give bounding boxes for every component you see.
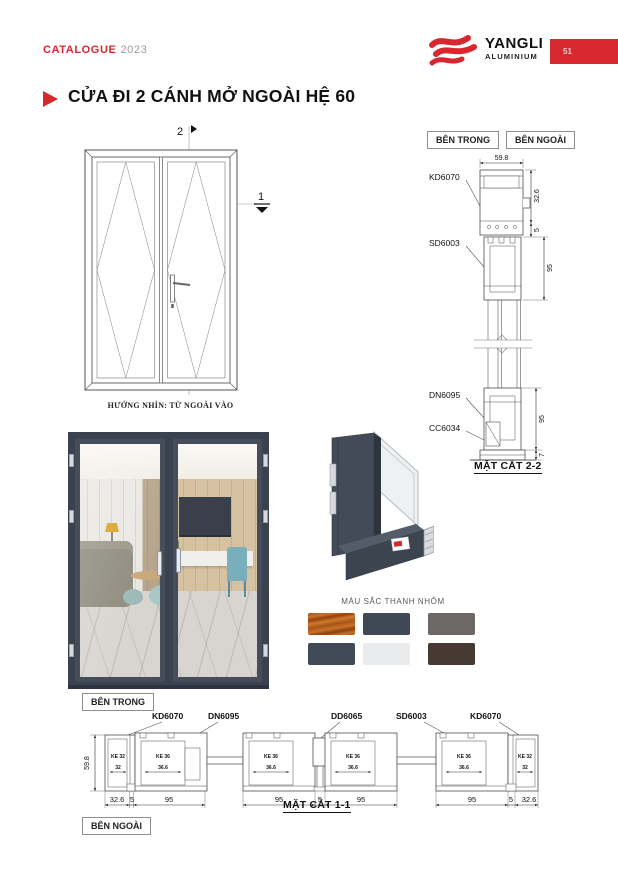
right-leaf-frame xyxy=(173,439,263,682)
profile-top-frame xyxy=(480,170,530,235)
profile-label-dn6095: DN6095 xyxy=(429,390,460,400)
s11-left-dim xyxy=(90,735,105,791)
outside-label-box-s11: BÊN NGOÀI xyxy=(82,817,151,835)
catalogue-header: CATALOGUE2023 xyxy=(43,44,147,56)
dim-59-8: 59.8 xyxy=(495,155,509,162)
ke36-dim-b1: 36.6 xyxy=(266,765,276,771)
ke36-text-c: KE 36 xyxy=(457,754,471,760)
page-number-badge: 51 xyxy=(550,39,618,64)
profile-top-leaf xyxy=(484,237,521,300)
right-door-handle xyxy=(176,548,181,573)
ke36-dim-c: 36.6 xyxy=(459,765,469,771)
s11-leaf-left xyxy=(135,733,207,791)
s11-frame-left xyxy=(105,735,137,791)
catalogue-page: CATALOGUE2023 YANGLI ALUMINIUM 51 CỬA ĐI… xyxy=(0,0,618,874)
door-frame xyxy=(85,150,237,390)
section-1-1-title: MẶT CẮT 1-1 xyxy=(283,799,351,813)
page-number: 51 xyxy=(563,47,572,56)
swatch-dark-brown xyxy=(428,643,475,665)
palette-title: MÀU SẮC THANH NHÔM xyxy=(303,597,483,606)
center-mullion xyxy=(165,439,173,682)
profile-bottom-frame xyxy=(470,450,536,460)
s11-frame-right xyxy=(506,735,538,791)
door-elevation-drawing: 2 1 xyxy=(58,118,283,408)
swatch-light-gray xyxy=(363,643,410,665)
swatch-slate-gray xyxy=(308,643,355,665)
swatch-anthracite-blue xyxy=(363,613,410,635)
ke36-dim-a: 36.6 xyxy=(158,765,168,771)
ke36-dim-b2: 36.6 xyxy=(348,765,358,771)
s11-glass-bar-2 xyxy=(397,757,436,764)
profile-label-kd6070: KD6070 xyxy=(429,172,460,182)
s11-dim-2: 95 xyxy=(165,795,173,804)
section-2-2-title: MẶT CẮT 2-2 xyxy=(474,460,542,474)
ke36-text-b2: KE 36 xyxy=(346,754,360,760)
hinge-right-bottom xyxy=(263,644,268,657)
swatch-wood-grain xyxy=(308,613,355,635)
profile-corner-3d xyxy=(316,428,434,586)
door-photo xyxy=(68,432,269,689)
brand-flag-icon xyxy=(428,33,482,69)
ke32-text-a: KE 32 xyxy=(111,754,125,760)
brand-subtitle: ALUMINIUM xyxy=(485,53,543,61)
section-marker-2: 2 xyxy=(177,126,183,138)
s11-dim-0: 32.6 xyxy=(110,795,125,804)
glass-run xyxy=(474,300,532,388)
ke32-dim-a: 32 xyxy=(115,765,121,771)
ke32-text-c: KE 32 xyxy=(518,754,532,760)
ke36-text-b1: KE 36 xyxy=(264,754,278,760)
view-direction-caption: HƯỚNG NHÌN: TỪ NGOÀI VÀO xyxy=(58,401,283,410)
s11-leaf-b1 xyxy=(243,733,315,791)
section-arrow-down-icon xyxy=(256,207,268,213)
dim-95-top: 95 xyxy=(547,264,554,272)
dim-95-bottom: 95 xyxy=(539,415,546,423)
left-leaf-frame xyxy=(75,439,165,682)
title-triangle-icon xyxy=(43,91,58,107)
hinge-left-top xyxy=(69,454,74,467)
ke36-text-a: KE 36 xyxy=(156,754,170,760)
page-title: CỬA ĐI 2 CÁNH MỞ NGOÀI HỆ 60 xyxy=(68,86,355,107)
catalogue-year: 2023 xyxy=(120,44,147,56)
profile-label-sd6003: SD6003 xyxy=(429,238,460,248)
ke32-dim-c: 32 xyxy=(522,765,528,771)
s11-dim-height: 59.8 xyxy=(84,756,91,770)
dim-32-6: 32.6 xyxy=(534,189,541,203)
hinge-left-bottom xyxy=(69,644,74,657)
hinge-left-mid xyxy=(69,510,74,523)
s11-dim-1: 5 xyxy=(130,795,134,804)
swatch-warm-gray xyxy=(428,613,475,635)
s11-leaf-b2 xyxy=(325,733,397,791)
left-door-handle xyxy=(157,551,162,576)
s11-dim-5: 95 xyxy=(357,795,365,804)
brand-name: YANGLI xyxy=(485,36,543,51)
hinge-right-mid xyxy=(263,510,268,523)
s11-dim-3: 95 xyxy=(275,795,283,804)
section-arrow-right-icon xyxy=(191,125,197,133)
profile-bottom-leaf xyxy=(484,388,521,450)
s11-dim-6: 95 xyxy=(468,795,476,804)
brand-block: YANGLI ALUMINIUM xyxy=(485,36,543,61)
hinge-right-top xyxy=(263,454,268,467)
s11-dim-7: 5 xyxy=(509,795,513,804)
dim-7: 7 xyxy=(539,453,546,457)
s11-leaf-right xyxy=(436,733,508,791)
catalogue-label: CATALOGUE xyxy=(43,44,116,56)
profile-label-sticker xyxy=(391,537,410,551)
door-glass xyxy=(75,439,262,682)
dim-5: 5 xyxy=(534,228,541,232)
s11-glass-bar-1 xyxy=(207,757,243,764)
section-marker-1: 1 xyxy=(258,191,264,203)
s11-dim-8: 32.6 xyxy=(522,795,537,804)
